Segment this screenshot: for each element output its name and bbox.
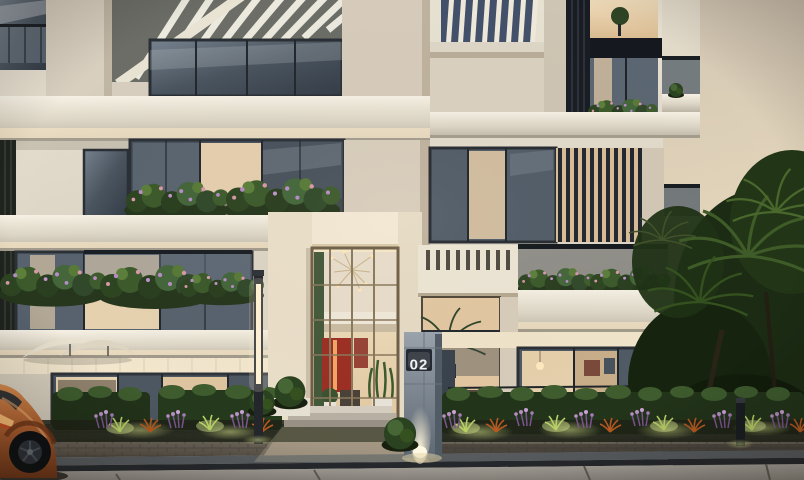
vignette-overlay [0, 0, 804, 480]
building-exterior-render: 02 [0, 0, 804, 480]
